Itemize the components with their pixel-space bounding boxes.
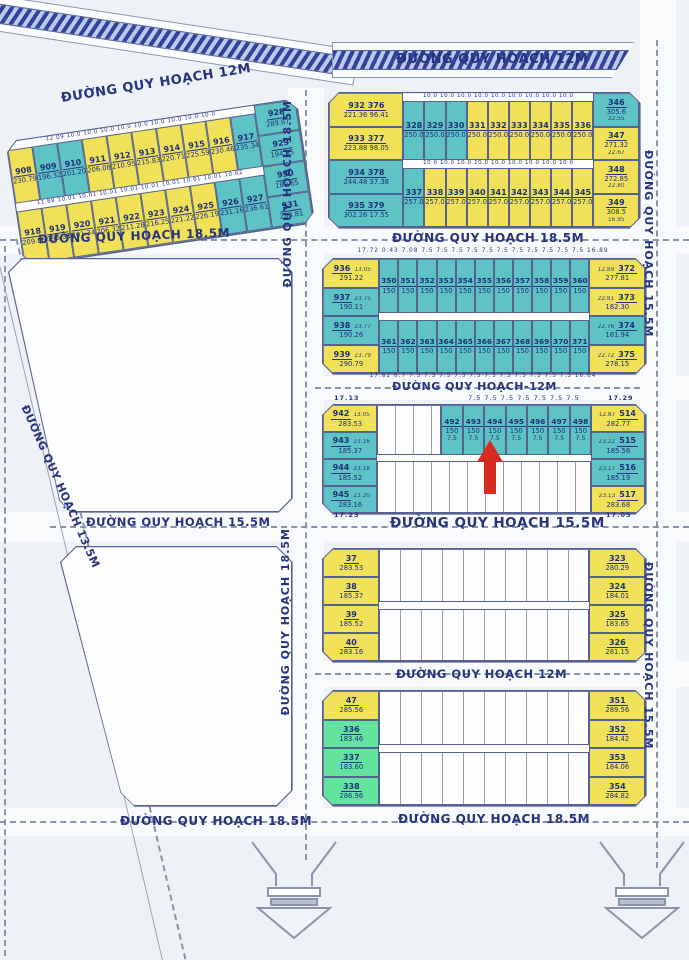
plot[interactable]: 325 183.65 [589,605,645,633]
plot-area: 150 [478,347,491,355]
plot[interactable]: 335 250.0 [551,101,572,160]
plot-number: 373 [616,293,637,303]
plot[interactable]: 367 150 [494,320,513,374]
plot-area: 184.01 [605,592,629,600]
plot[interactable]: 363 150 [417,320,436,374]
plot[interactable]: 338 286.96 [323,777,379,806]
dimension-label: 17.29 [608,394,634,402]
plot-number: 348 [606,165,627,175]
plot-area: 185.37 [338,447,362,455]
plot-number: 325 [607,610,628,620]
plot[interactable]: 362 150 [398,320,417,374]
plot[interactable]: 340 257.0 [467,168,488,227]
plot-number: 352 [417,277,436,287]
plot-number: 370 [551,338,570,348]
plot[interactable]: 332 250.0 [488,101,509,160]
highlight-arrow [477,440,503,494]
plot-dimension: 23.75 [354,296,371,302]
plot-column: 942 13.05 283.53 943 23.16 185.37 944 23… [323,405,377,513]
road-label-12m-mid: ĐƯỜNG QUY HOẠCH-12M [392,380,557,393]
plot-area: 283.53 [339,564,363,572]
plot-area: 277.81 [605,274,629,282]
plot-pair[interactable]: 932 376 221.36 96.41 [329,93,403,127]
plot-number: 354 [456,277,475,287]
plot-area: 250.0 [552,131,571,139]
hatch-pattern [0,0,356,77]
plot-area: 150 [421,347,434,355]
plot[interactable]: 336 250.0 [572,101,593,160]
plot[interactable]: 323 280.29 [589,549,645,577]
plot[interactable]: 936 13.05 291.22 [323,259,379,288]
plot-number: 497 [549,418,568,428]
plot-number: 359 [551,277,570,287]
plot[interactable]: 331 250.0 [467,101,488,160]
plot-number: 47 [344,696,359,706]
plot-pair[interactable]: 934 378 244.48 37.38 [329,160,403,194]
plot-area: 250.0 [467,131,486,139]
plot-area: 185.19 [606,474,630,482]
plot-number: 944 [331,463,352,473]
plot[interactable]: 365 150 [456,320,475,374]
plot-number: 361 [379,338,398,348]
plot[interactable]: 40 283.16 [323,633,379,661]
plot-area: 150 [440,287,453,295]
plot-area: 183.60 [339,763,363,771]
plot[interactable]: 23.22 515 185.56 [591,432,645,459]
plot[interactable]: 492 150 7.5 [441,405,462,455]
plot[interactable]: 939 23.79 290.79 [323,345,379,374]
plot-dimension: 22.72 [598,353,615,359]
plot-pair[interactable]: 935 379 302.26 17.55 [329,194,403,228]
plot-area: 150 [535,347,548,355]
plot[interactable]: 22.76 374 181.94 [589,316,645,345]
plot-area: 250.0 [446,131,465,139]
plot[interactable]: 347 271.32 22.67 [593,127,639,161]
dimension-line: 17.72 0.43 7.08 7.5 7.5 7.5 7.5 7.5 7.5 … [322,248,644,254]
plot-number: 324 [607,582,628,592]
plot[interactable]: 943 23.16 185.37 [323,432,377,459]
plot-number: 367 [494,338,513,348]
plot[interactable]: 337 183.60 [323,748,379,777]
plot-number: 338 [425,188,446,198]
plot[interactable]: 350 150 [379,259,398,313]
plot[interactable]: 338 257.0 [424,168,445,227]
plot-area: 282.77 [606,420,630,428]
plot-number: 362 [398,338,417,348]
plot-column: 936 13.05 291.22 937 23.75 190.11 938 23… [323,259,379,373]
plot-area: 185.52 [338,474,362,482]
plot-area: 257.0 [531,198,550,206]
plot-dimension: 13.05 [354,267,371,273]
plot-area: 280.29 [605,564,629,572]
plot-area: 150 [421,287,434,295]
plot[interactable]: 369 150 [532,320,551,374]
plot[interactable]: 333 250.0 [509,101,530,160]
plot-area: 257.0 [573,198,592,206]
plot[interactable]: 328 250.0 [403,101,424,160]
plot-area: 291.22 [339,274,363,282]
plot-column: 346 305.6 22.55 347 271.32 22.67 348 272… [593,93,639,227]
road-label-15-5m-left: ĐƯỜNG QUY HOẠCH 15.5M [86,515,271,529]
plot[interactable]: 358 150 [532,259,551,313]
plot-number: 932 376 [346,101,386,111]
plot-number: 945 [331,490,352,500]
plot-number: 496 [528,418,547,428]
plot-number: 37 [344,554,359,564]
dimension-label: 17.23 [334,511,360,519]
plot-number: 933 377 [346,134,386,144]
plot-dimension: 12.87 [599,412,616,418]
plot[interactable]: 945 23.20 283.16 [323,486,377,513]
road-label-15-5m-mid: ĐƯỜNG QUY HOẠCH 15.5M [390,515,605,531]
plot[interactable]: 370 150 [551,320,570,374]
plot-number: 38 [344,582,359,592]
plot[interactable]: 353 150 [437,259,456,313]
plot-area: 190.11 [339,303,363,311]
plot-area: 185.37 [339,592,363,600]
plot-area: 150 [516,287,529,295]
plot-number: 344 [551,188,572,198]
road-centerline [4,246,6,956]
dimension-row: 10.0 10.0 10.0 10.0 10.0 10.0 10.0 10.0 … [403,160,593,168]
plot[interactable]: 352 150 [417,259,436,313]
plot[interactable]: 38 185.37 [323,577,379,605]
plot[interactable]: 22.81 373 182.30 [589,288,645,317]
plot-area: 283.16 [338,501,362,509]
vacant-plots [379,691,589,745]
plot-number: 935 379 [346,201,386,211]
road-label-18-5m-bottommid: ĐƯỜNG QUY HOẠCH 18.5M [398,812,590,826]
plot-column: 47 285.56 336 183.46 337 183.60 338 286.… [323,691,379,805]
plot[interactable]: 326 281.15 [589,633,645,661]
plot[interactable]: 351 150 [398,259,417,313]
plot-dimension: 12.89 [598,267,615,273]
plot-area: 272.85 [604,175,628,183]
plot-number: 350 [379,277,398,287]
plot-area: 181.94 [605,331,629,339]
dimension-line: 7.5 7.5 7.5 7.5 7.5 7.5 7.5 [468,394,580,402]
plot[interactable]: 39 185.52 [323,605,379,633]
plot[interactable]: 329 250.0 [424,101,445,160]
plot-area: 150 [554,287,567,295]
plot[interactable]: 352 184.42 [589,720,645,749]
vacant-plots [379,609,589,662]
plot-area: 150 [516,347,529,355]
plot-area: 190.26 [339,331,363,339]
plot-area: 250.0 [489,131,508,139]
plot-area: 302.26 17.55 [344,211,389,219]
plot[interactable]: 337 257.0 [403,168,424,227]
plot-dimension: 23.77 [354,324,371,330]
plot-number: 335 [551,121,572,131]
plot-number: 337 [404,188,425,198]
dimension-row: 10.0 10.0 10.0 10.0 10.0 10.0 10.0 10.0 … [403,93,593,101]
plot-row: 328 250.0 329 250.0 330 250.0 331 250.0 … [403,101,593,160]
plot-number: 329 [425,121,446,131]
plot-dimension: 23.20 [353,493,370,499]
plot-number: 939 [332,350,353,360]
plot-column: 323 280.29 324 184.01 325 183.65 326 281… [589,549,645,661]
plot-row: 350 150 351 150 352 150 353 150 354 150 [379,259,589,313]
plot-area: 150 [401,287,414,295]
plot[interactable]: 937 23.75 190.11 [323,288,379,317]
plot-area: 184.06 [605,763,629,771]
plot-area: 250.0 [531,131,550,139]
plot-area: 290.79 [339,360,363,368]
plot-number: 357 [513,277,532,287]
plot[interactable]: 343 257.0 [530,168,551,227]
plot-area: 183.46 [339,735,363,743]
plot-area: 284.82 [605,792,629,800]
plot-dimension: 22.67 [608,150,625,156]
plot-area: 250.0 [404,131,423,139]
dimension-line: 17.82 6.7 7.5 7.5 7.5 7.5 7.5 7.5 7.5 7.… [322,373,644,379]
plot-number: 340 [467,188,488,198]
plot-area: 271.32 [604,141,628,149]
plot-area: 150 [497,287,510,295]
vacant-parcel-lower [60,546,293,807]
plot-area: 184.42 [605,735,629,743]
plot-area: 283.16 [339,648,363,656]
plot-number: 943 [331,436,352,446]
plot-dimension: 13.05 [353,412,370,418]
plot-number: 934 378 [346,168,386,178]
plot-number: 356 [494,277,513,287]
plot-area: 281.15 [605,648,629,656]
plot[interactable]: 22.72 375 278.15 [589,345,645,374]
plot-dimension: 23.16 [353,439,370,445]
plot-number: 936 [332,264,353,274]
block-alley [379,313,589,320]
plot[interactable]: 47 285.56 [323,691,379,720]
plot[interactable]: 342 257.0 [509,168,530,227]
plot-dimension: 23.17 [599,466,616,472]
road-centerline [656,40,658,868]
plot-area: 286.96 [339,792,363,800]
plot-number: 369 [532,338,551,348]
plot[interactable]: 360 150 [570,259,589,313]
plot-frontage: 7.5 [576,436,586,443]
plot-number: 349 [606,198,627,208]
road-label-18-5m-vertical-upper: ĐƯỜNG QUY HOẠCH 18.5M [281,100,294,287]
plot-area: 257.0 [425,198,444,206]
plot-dimension: 23.18 [353,466,370,472]
plot[interactable]: 324 184.01 [589,577,645,605]
plot-number: 374 [616,321,637,331]
plot-number: 360 [570,277,589,287]
plot-number: 330 [446,121,467,131]
plot[interactable]: 345 257.0 [572,168,593,227]
plot[interactable]: 497 150 7.5 [548,405,569,455]
plot[interactable]: 336 183.46 [323,720,379,749]
plot[interactable]: 354 150 [456,259,475,313]
plot-number: 351 [398,277,417,287]
plot-area: 257.0 [404,198,423,206]
plot-area: 289.56 [605,706,629,714]
plot-number: 516 [617,463,638,473]
plot-number: 355 [475,277,494,287]
plot[interactable]: 495 150 7.5 [506,405,527,455]
plot-dimension: 16.95 [608,217,625,223]
plot-area: 283.53 [338,420,362,428]
road-label-18-5m-bottomleft: ĐƯỜNG QUY HOẠCH 18.5M [120,814,312,828]
plot[interactable]: 330 250.0 [446,101,467,160]
plot-number: 492 [442,418,461,428]
plot-area: 257.0 [446,198,465,206]
planning-map: ĐƯỜNG QUY HOẠCH 12M ĐƯỜNG QUY HOẠCH 12M … [0,0,689,960]
dimension-label: 17.05 [606,511,632,519]
plot-number: 498 [571,418,590,428]
block-37-326: 37 283.53 38 185.37 39 185.52 40 283.16 [322,548,647,663]
plot[interactable]: 339 257.0 [446,168,467,227]
plot-number: 334 [530,121,551,131]
plot-number: 337 [341,753,362,763]
plot-area: 257.0 [489,198,508,206]
plot[interactable]: 944 23.18 185.52 [323,459,377,486]
plot[interactable]: 346 305.6 22.55 [593,93,639,127]
road-label-12m-topmid: ĐƯỜNG QUY HOẠCH 12M [396,52,588,67]
plot-column: 12.89 372 277.81 22.81 373 182.30 22.76 … [589,259,645,373]
plot-area: 250.0 [573,131,592,139]
plot-dimension: 23.79 [354,353,371,359]
plot-dimension: 22.81 [598,296,615,302]
plot-number: 495 [507,418,526,428]
plot-area: 257.0 [510,198,529,206]
dimension-label: 17.13 [334,394,360,402]
plot[interactable]: 12.87 514 282.77 [591,405,645,432]
plot-number: 347 [606,131,627,141]
plot-frontage: 7.5 [554,436,564,443]
plot-area: 308.5 [607,208,626,216]
plot-dimension: 22.76 [598,324,615,330]
vacant-plots [377,405,441,455]
vacant-plots [379,549,589,602]
plot-number: 353 [437,277,456,287]
plot[interactable]: 354 284.82 [589,777,645,806]
plot[interactable]: 364 150 [437,320,456,374]
plot-number: 346 [606,98,627,108]
road-label-18-5m-vertical-lower: ĐƯỜNG QUY HOẠCH 18.5M [279,528,292,715]
block-47-354: 47 285.56 336 183.46 337 183.60 338 286.… [322,690,647,807]
plot-area: 250.0 [425,131,444,139]
plot[interactable]: 353 184.06 [589,748,645,777]
plot-area: 150 [554,347,567,355]
road-label-15-5m-vertical-upper: ĐƯỜNG QUY HOẠCH 15.5M [642,150,655,337]
block-alley [379,602,589,609]
plot[interactable]: 348 272.85 22.80 [593,160,639,194]
plot[interactable]: 355 150 [475,259,494,313]
plot[interactable]: 498 150 7.5 [570,405,591,455]
plot-area: 305.6 [607,108,626,116]
plot-number: 368 [513,338,532,348]
road-label-15-5m-vertical-lower: ĐƯỜNG QUY HOẠCH 15.5M [642,562,655,749]
block-alley [379,745,589,752]
road-label-12m-lower: ĐƯỜNG QUY HOẠCH 12M [396,667,567,681]
plot[interactable]: 371 150 [570,320,589,374]
plot-dimension: 22.55 [608,116,625,122]
road-continuation-arrow-right [598,840,686,945]
plot[interactable]: 496 150 7.5 [527,405,548,455]
plot-number: 352 [607,725,628,735]
plot[interactable]: 359 150 [551,259,570,313]
plot[interactable]: 349 308.5 16.95 [593,194,639,228]
plot-area: 257.0 [467,198,486,206]
plot-dimension: 23.13 [599,493,616,499]
plot-number: 353 [607,753,628,763]
plot-number: 341 [488,188,509,198]
plot-number: 515 [617,436,638,446]
plot[interactable]: 942 13.05 283.53 [323,405,377,432]
plot-column: 37 283.53 38 185.37 39 185.52 40 283.16 [323,549,379,661]
plot-number: 937 [332,293,353,303]
plot-area: 223.88 98.05 [344,144,389,152]
plot-area: 244.48 37.38 [344,178,389,186]
plot-row: 492 150 7.5 493 150 7.5 494 150 7.5 [441,405,591,455]
vacant-plots [379,752,589,806]
plot-number: 40 [344,638,359,648]
plot[interactable]: 23.13 517 283.68 [591,486,645,513]
block-328-349: 932 376 221.36 96.41 933 377 223.88 98.0… [328,92,641,229]
plot[interactable]: 357 150 [513,259,532,313]
plot-number: 942 [331,409,352,419]
plot-number: 336 [341,725,362,735]
plot[interactable]: 361 150 [379,320,398,374]
plot-area: 150 [459,347,472,355]
plot-number: 338 [341,782,362,792]
plot[interactable]: 334 250.0 [530,101,551,160]
plot[interactable]: 351 289.56 [589,691,645,720]
plot[interactable]: 366 150 [475,320,494,374]
plot-area: 150 [478,287,491,295]
plot-area: 150 [573,287,586,295]
plot[interactable]: 12.89 372 277.81 [589,259,645,288]
plot-area: 283.68 [606,501,630,509]
plot-frontage: 7.5 [511,436,521,443]
plot-area: 285.56 [339,706,363,714]
road-label-12m-topleft: ĐƯỜNG QUY HOẠCH 12M [60,61,252,106]
plot-area: 150 [497,347,510,355]
plot-area: 250.0 [510,131,529,139]
plot-area: 150 [440,347,453,355]
plot-frontage: 7.5 [447,436,457,443]
plot[interactable]: 341 257.0 [488,168,509,227]
plot-area: 183.65 [605,620,629,628]
plot-column: 932 376 221.36 96.41 933 377 223.88 98.0… [329,93,403,227]
plot-column: 12.87 514 282.77 23.22 515 185.56 23.17 … [591,405,645,513]
plot-number: 371 [570,338,589,348]
plot[interactable]: 344 257.0 [551,168,572,227]
plot-number: 333 [509,121,530,131]
plot[interactable]: 938 23.77 190.26 [323,316,379,345]
plot-area: 185.52 [339,620,363,628]
plot-number: 351 [607,696,628,706]
plot-dimension: 23.22 [599,439,616,445]
plot[interactable]: 368 150 [513,320,532,374]
plot-number: 332 [488,121,509,131]
plot[interactable]: 37 283.53 [323,549,379,577]
plot-frontage: 7.5 [533,436,543,443]
plot-number: 517 [617,490,638,500]
plot-pair[interactable]: 933 377 223.88 98.05 [329,127,403,161]
plot-number: 494 [485,418,504,428]
plot-area: 150 [459,287,472,295]
plot-row: 361 150 362 150 363 150 364 150 365 150 [379,320,589,374]
plot-area: 185.56 [606,447,630,455]
plot-number: 365 [456,338,475,348]
plot-number: 326 [607,638,628,648]
plot[interactable]: 356 150 [494,259,513,313]
plot[interactable]: 23.17 516 185.19 [591,459,645,486]
